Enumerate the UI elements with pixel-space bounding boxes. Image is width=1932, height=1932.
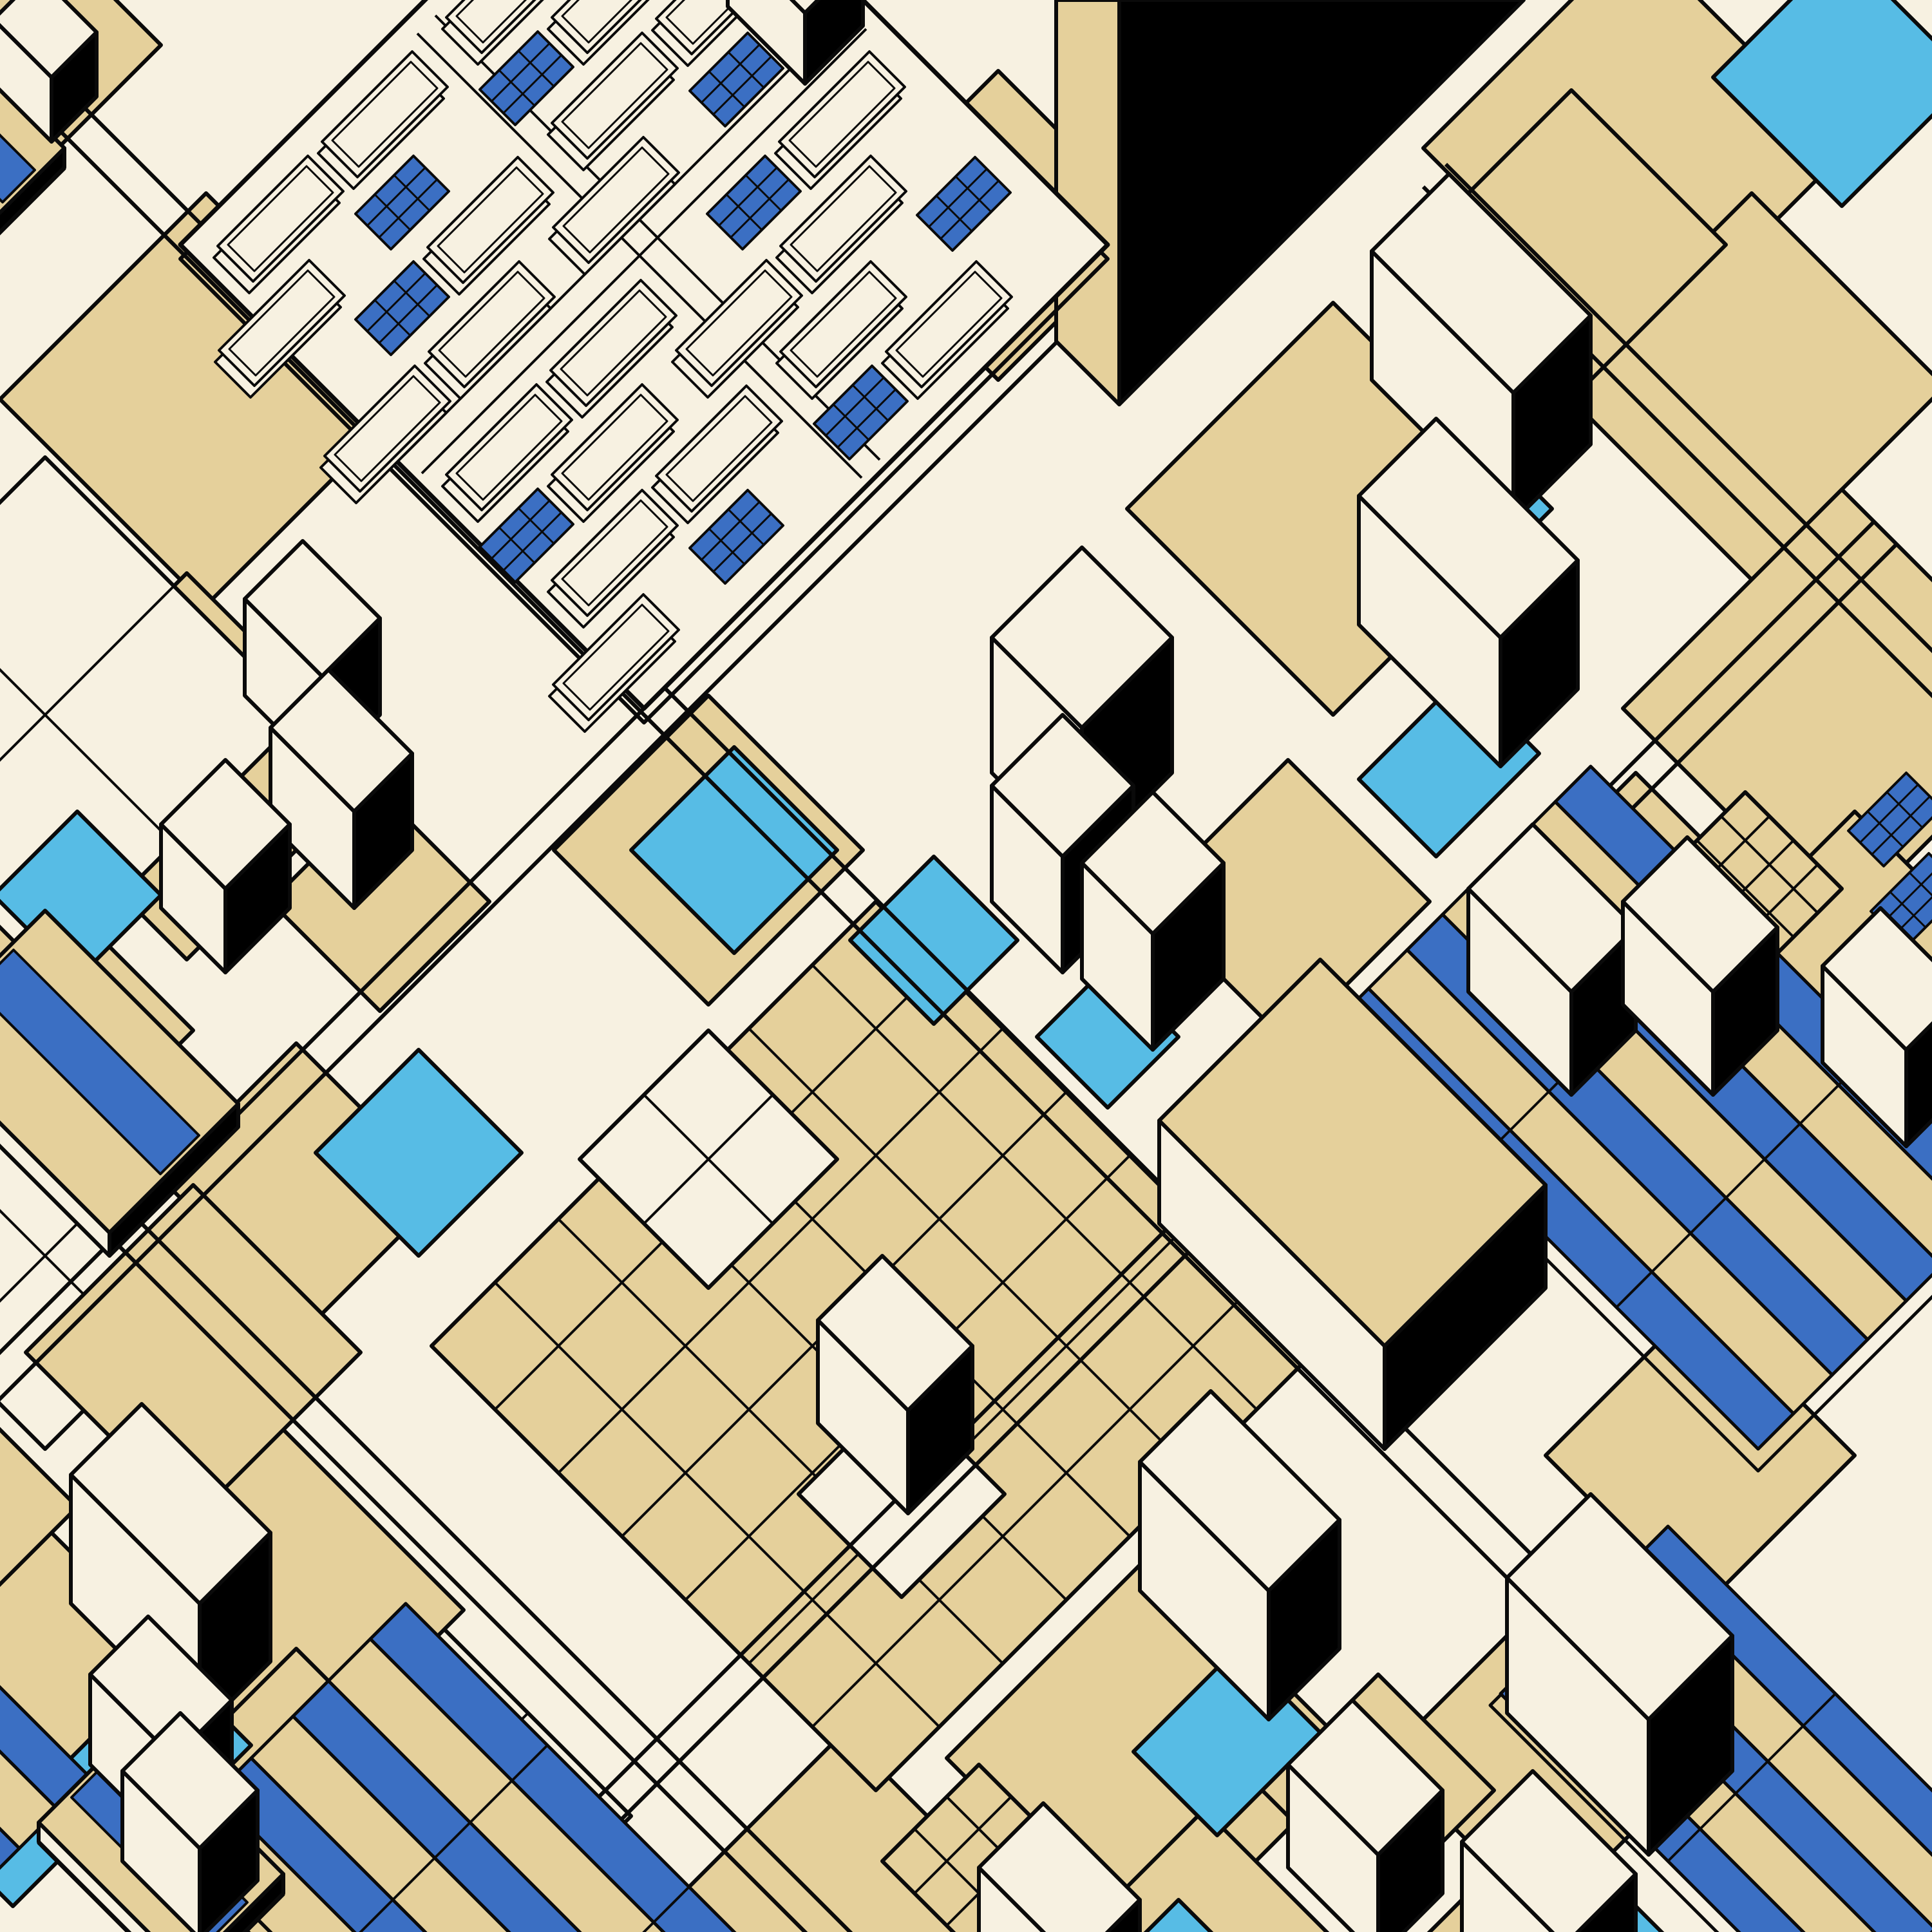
- generative-isometric-artwork: [0, 0, 1932, 1932]
- artwork-canvas: [0, 0, 1932, 1932]
